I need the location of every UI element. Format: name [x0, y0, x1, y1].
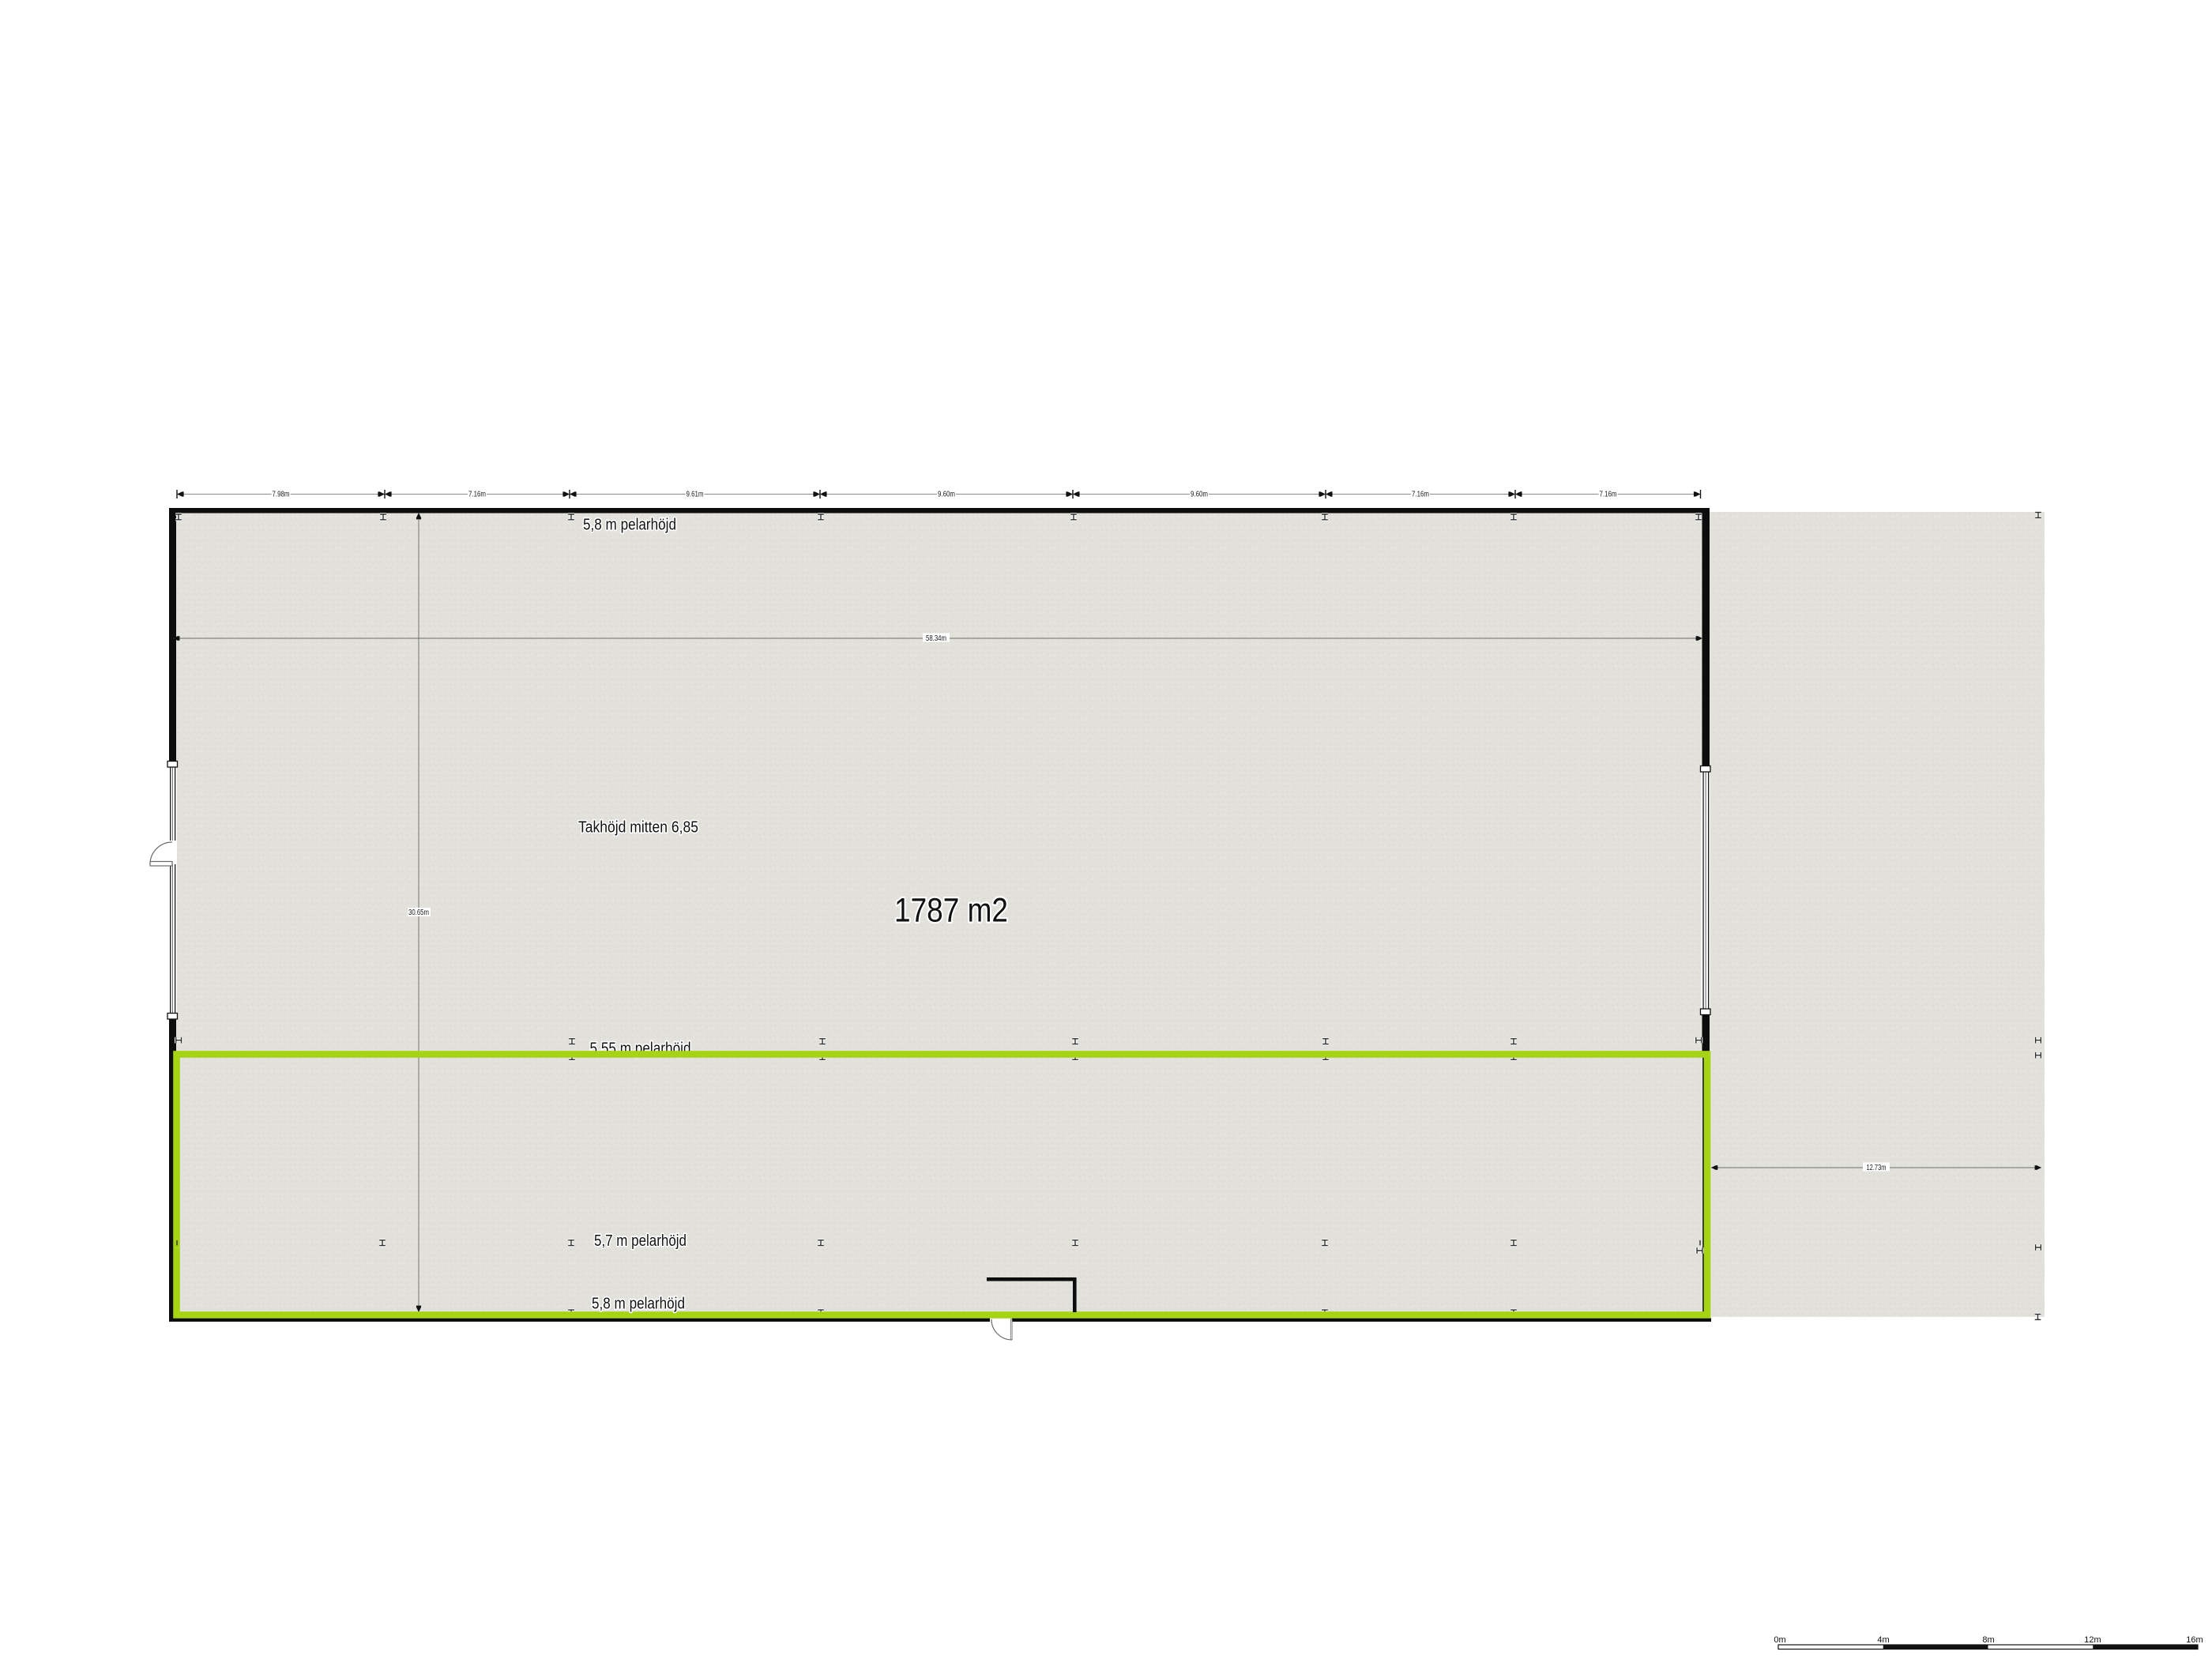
- svg-text:9.60m: 9.60m: [938, 490, 955, 498]
- svg-text:16m: 16m: [2186, 1635, 2203, 1645]
- svg-text:9.61m: 9.61m: [687, 490, 704, 498]
- svg-text:5,8 m pelarhöjd: 5,8 m pelarhöjd: [583, 517, 676, 534]
- svg-text:7.16m: 7.16m: [1600, 490, 1617, 498]
- svg-text:5,8 m pelarhöjd: 5,8 m pelarhöjd: [592, 1296, 685, 1313]
- svg-text:7.16m: 7.16m: [468, 490, 486, 498]
- svg-text:5,7 m pelarhöjd: 5,7 m pelarhöjd: [594, 1232, 687, 1250]
- svg-text:8m: 8m: [1982, 1635, 1994, 1645]
- svg-text:30.65m: 30.65m: [408, 908, 429, 917]
- svg-text:4m: 4m: [1877, 1635, 1889, 1645]
- svg-text:58.34m: 58.34m: [926, 634, 946, 643]
- svg-text:12.73m: 12.73m: [1867, 1164, 1887, 1172]
- svg-text:1787 m2: 1787 m2: [894, 892, 1008, 930]
- svg-text:9.60m: 9.60m: [1191, 490, 1208, 498]
- svg-text:Takhöjd mitten 6,85: Takhöjd mitten 6,85: [578, 819, 698, 837]
- svg-text:7.98m: 7.98m: [273, 490, 290, 498]
- svg-text:7.16m: 7.16m: [1412, 490, 1429, 498]
- svg-text:0m: 0m: [1774, 1635, 1785, 1645]
- svg-text:12m: 12m: [2084, 1635, 2101, 1645]
